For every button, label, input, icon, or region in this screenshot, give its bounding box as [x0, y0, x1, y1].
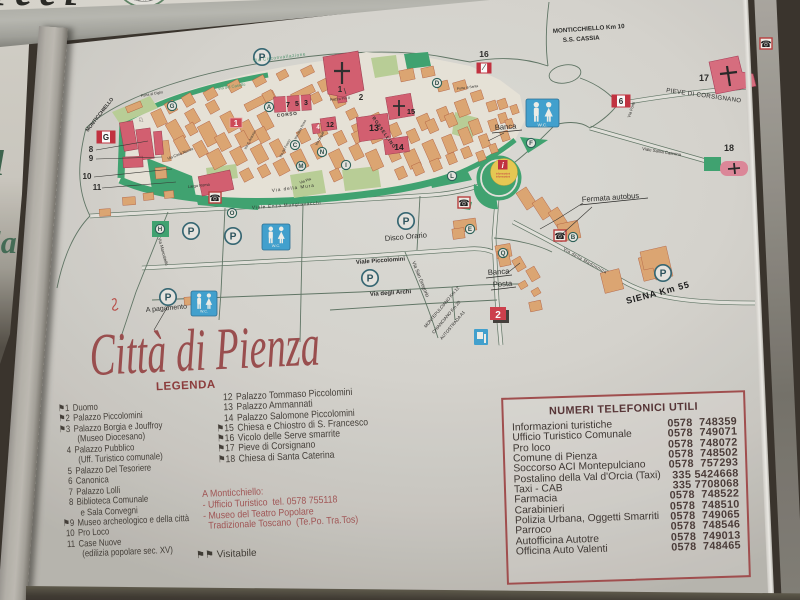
svg-text:1: 1	[338, 85, 343, 94]
svg-text:G: G	[170, 103, 175, 110]
svg-text:Via San Gregorio: Via San Gregorio	[410, 261, 430, 299]
svg-text:H: H	[158, 226, 163, 233]
svg-text:MONTICCHIELLO: MONTICCHIELLO	[85, 97, 115, 134]
svg-text:P: P	[230, 231, 237, 242]
svg-text:S.S. CASSIA: S.S. CASSIA	[563, 34, 601, 44]
svg-text:informazioni: informazioni	[496, 175, 510, 179]
svg-text:P: P	[660, 268, 667, 279]
svg-text:1: 1	[234, 119, 239, 128]
svg-text:18: 18	[724, 143, 734, 153]
svg-text:Banca: Banca	[495, 121, 518, 132]
svg-text:11: 11	[93, 183, 102, 192]
svg-text:8: 8	[89, 145, 94, 154]
svg-text:10: 10	[83, 172, 92, 181]
svg-text:Disco Orario: Disco Orario	[384, 230, 427, 243]
svg-text:♘: ♘	[138, 116, 144, 124]
svg-text:5: 5	[295, 101, 299, 108]
svg-text:M: M	[298, 163, 303, 170]
svg-text:D: D	[435, 80, 440, 87]
svg-text:Via della Madonnina: Via della Madonnina	[563, 247, 609, 275]
svg-text:A: A	[267, 104, 272, 111]
svg-text:B: B	[571, 234, 576, 241]
svg-text:W.C.: W.C.	[537, 122, 547, 127]
svg-text:Porta al Ciglio: Porta al Ciglio	[140, 90, 163, 98]
svg-text:SIENA Km 55: SIENA Km 55	[625, 279, 691, 306]
svg-text:12: 12	[326, 122, 334, 129]
svg-text:P: P	[367, 273, 374, 284]
svg-text:AUTOSTRADA A1: AUTOSTRADA A1	[439, 309, 466, 340]
svg-text:2: 2	[495, 310, 501, 321]
svg-text:Via degli Archi: Via degli Archi	[370, 289, 412, 298]
svg-text:Q: Q	[501, 250, 506, 257]
svg-text:6: 6	[619, 97, 624, 106]
svg-text:15: 15	[407, 107, 415, 116]
svg-text:7: 7	[286, 102, 290, 109]
svg-text:☎: ☎	[458, 198, 469, 208]
svg-text:A pagamento: A pagamento	[146, 303, 188, 314]
svg-text:O: O	[230, 210, 235, 217]
svg-text:P: P	[188, 226, 195, 237]
svg-text:Via Mancatello: Via Mancatello	[157, 237, 169, 267]
svg-text:C: C	[293, 142, 298, 149]
svg-text:W.C.: W.C.	[272, 243, 281, 248]
svg-text:2: 2	[359, 93, 364, 102]
svg-text:L: L	[450, 173, 454, 180]
svg-text:3: 3	[304, 100, 308, 107]
svg-text:☎: ☎	[209, 193, 220, 203]
svg-text:W.C.: W.C.	[200, 310, 208, 314]
svg-text:P: P	[165, 292, 172, 303]
svg-text:F: F	[529, 140, 533, 147]
svg-text:E: E	[468, 226, 472, 233]
svg-text:N: N	[320, 149, 325, 156]
svg-text:17: 17	[699, 73, 709, 83]
svg-text:9: 9	[89, 154, 94, 163]
svg-text:I: I	[345, 162, 347, 169]
svg-text:G: G	[103, 133, 109, 142]
svg-text:MONTICCHIELLO Km 10: MONTICCHIELLO Km 10	[553, 23, 626, 35]
svg-text:16: 16	[479, 49, 489, 59]
svg-text:☎: ☎	[760, 39, 771, 49]
svg-text:P: P	[403, 216, 410, 227]
